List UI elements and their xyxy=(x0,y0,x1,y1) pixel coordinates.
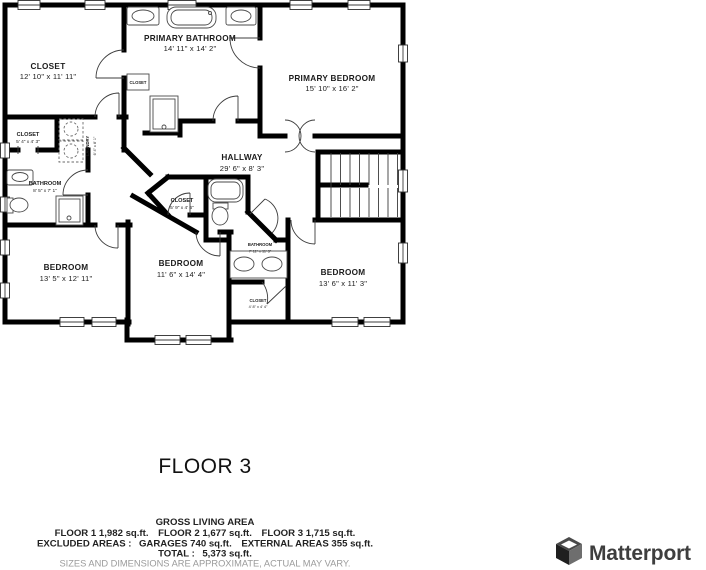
window-midlines xyxy=(5,5,403,340)
bedroom-right-dims: 13' 6" x 11' 3" xyxy=(319,279,367,288)
bathroom-middle-label: BATHROOM xyxy=(248,242,273,247)
primary-bathroom-label: PRIMARY BATHROOM xyxy=(144,34,236,43)
summary-title: GROSS LIVING AREA xyxy=(156,517,255,528)
hallway-label: HALLWAY xyxy=(221,153,263,162)
toilet xyxy=(7,198,28,213)
floor-title: FLOOR 3 xyxy=(158,455,251,478)
bedroom-right-label: BEDROOM xyxy=(321,268,366,277)
closet-bottom-label: CLOSET xyxy=(250,298,267,303)
shower xyxy=(150,96,178,132)
bedroom-middle-label: BEDROOM xyxy=(159,259,204,268)
primary-bedroom-label: PRIMARY BEDROOM xyxy=(289,74,376,83)
bedroom-left-label: BEDROOM xyxy=(44,263,89,272)
primary-bedroom-dims: 15' 10" x 16' 2" xyxy=(305,84,358,93)
bedroom-left-dims: 13' 5" x 12' 11" xyxy=(40,274,93,283)
area-summary: GROSS LIVING AREA FLOOR 1 1,982 sq.ft. F… xyxy=(37,517,373,569)
laundry-dims: 6' 4" x 8' 1" xyxy=(93,136,97,155)
bathroom-left-dims: 8' 5" x 7' 1" xyxy=(33,188,57,194)
floor-plan-page: CLOSET 12' 10" x 11' 11" PRIMARY BATHROO… xyxy=(0,0,706,570)
bathtub xyxy=(167,7,216,28)
laundry-label: LAUNDRY xyxy=(85,136,90,157)
closet-tl-dims: 12' 10" x 11' 11" xyxy=(20,72,77,81)
hallway-dims: 29' 6" x 8' 3" xyxy=(220,164,265,173)
washer xyxy=(59,119,83,140)
matterport-logo-text: Matterport xyxy=(589,542,691,565)
closet-bottom-dims: 4' 8" x 4' 4" xyxy=(249,305,268,309)
matterport-logo: Matterport xyxy=(556,537,691,565)
laundry-fixtures xyxy=(59,119,83,162)
primary-bathroom-dims: 14' 11" x 14' 2" xyxy=(164,44,217,53)
summary-disclaimer: SIZES AND DIMENSIONS ARE APPROXIMATE, AC… xyxy=(59,559,350,569)
matterport-logo-icon xyxy=(556,537,582,565)
floor-plan-canvas: CLOSET 12' 10" x 11' 11" PRIMARY BATHROO… xyxy=(0,0,706,570)
double-vanity xyxy=(230,251,287,278)
room-labels: CLOSET 12' 10" x 11' 11" PRIMARY BATHROO… xyxy=(16,34,375,309)
bathroom-middle-dims: 7' 11" x 11' 3" xyxy=(249,250,272,254)
left-bathroom-fixtures xyxy=(7,170,83,225)
closet-left-dims: 5' 4" x 4' 3" xyxy=(16,139,40,145)
summary-floors-line: FLOOR 1 1,982 sq.ft. FLOOR 2 1,677 sq.ft… xyxy=(55,528,356,539)
closet-left-label: CLOSET xyxy=(17,132,40,138)
primary-bathroom-fixtures xyxy=(127,7,256,132)
walls xyxy=(5,5,403,340)
closet-nook-label: CLOSET xyxy=(130,80,147,85)
bathtub xyxy=(208,179,243,202)
closet-tl-label: CLOSET xyxy=(30,62,65,71)
sink xyxy=(226,7,256,25)
bathroom-left-label: BATHROOM xyxy=(29,181,62,187)
bedroom-middle-dims: 11' 6" x 14' 4" xyxy=(157,270,205,279)
shower xyxy=(56,196,83,225)
closet-hall-label: CLOSET xyxy=(171,198,194,204)
closet-hall-dims: 5' 9" x 4' 6" xyxy=(170,205,194,211)
toilet xyxy=(212,203,228,225)
sink xyxy=(127,7,159,25)
dryer xyxy=(59,141,83,162)
